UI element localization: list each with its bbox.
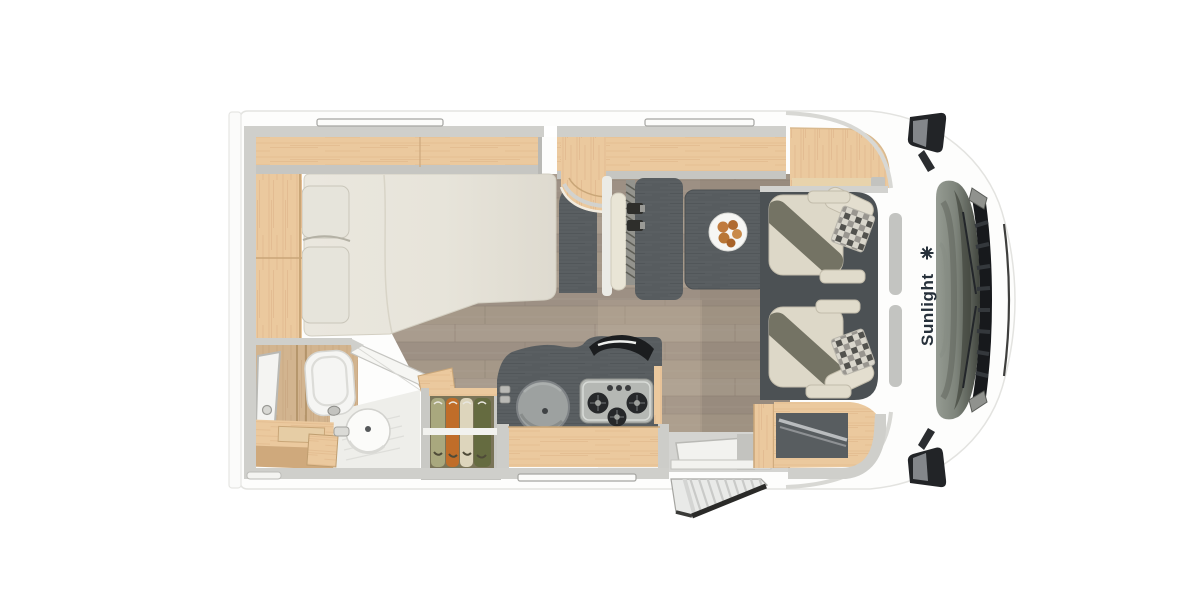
svg-text:Sunlight: Sunlight [918, 273, 937, 346]
